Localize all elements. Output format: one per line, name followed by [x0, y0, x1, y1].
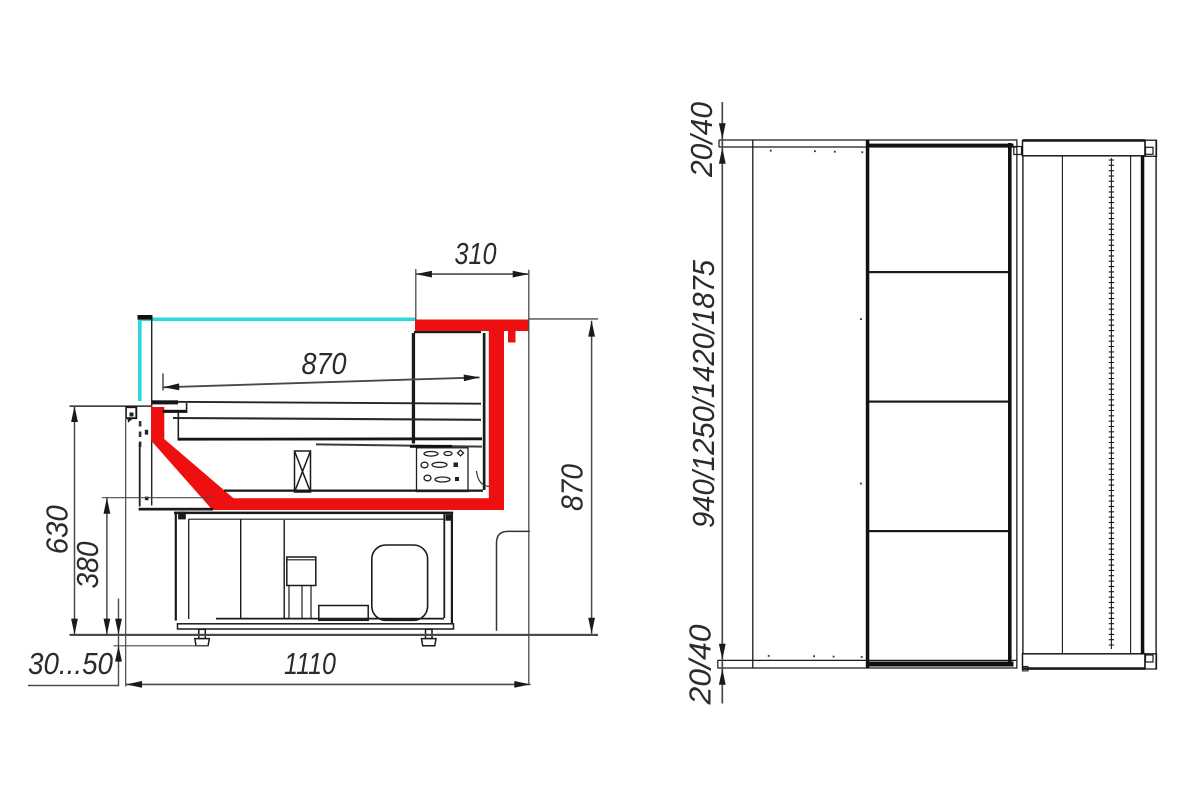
svg-text:940/1250/1420/1875: 940/1250/1420/1875	[686, 259, 721, 528]
svg-text:310: 310	[455, 236, 497, 271]
svg-text:870: 870	[555, 464, 590, 511]
svg-text:870: 870	[302, 346, 347, 381]
svg-text:30...50: 30...50	[28, 646, 113, 681]
svg-text:20/40: 20/40	[684, 102, 719, 178]
svg-text:380: 380	[70, 542, 105, 589]
svg-text:1110: 1110	[284, 646, 336, 681]
svg-text:20/40: 20/40	[683, 625, 718, 706]
